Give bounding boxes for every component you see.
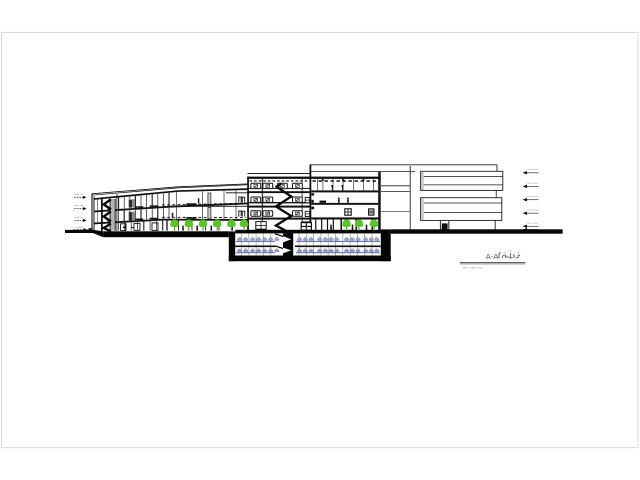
svg-text:A-A: A-A: [486, 252, 500, 261]
